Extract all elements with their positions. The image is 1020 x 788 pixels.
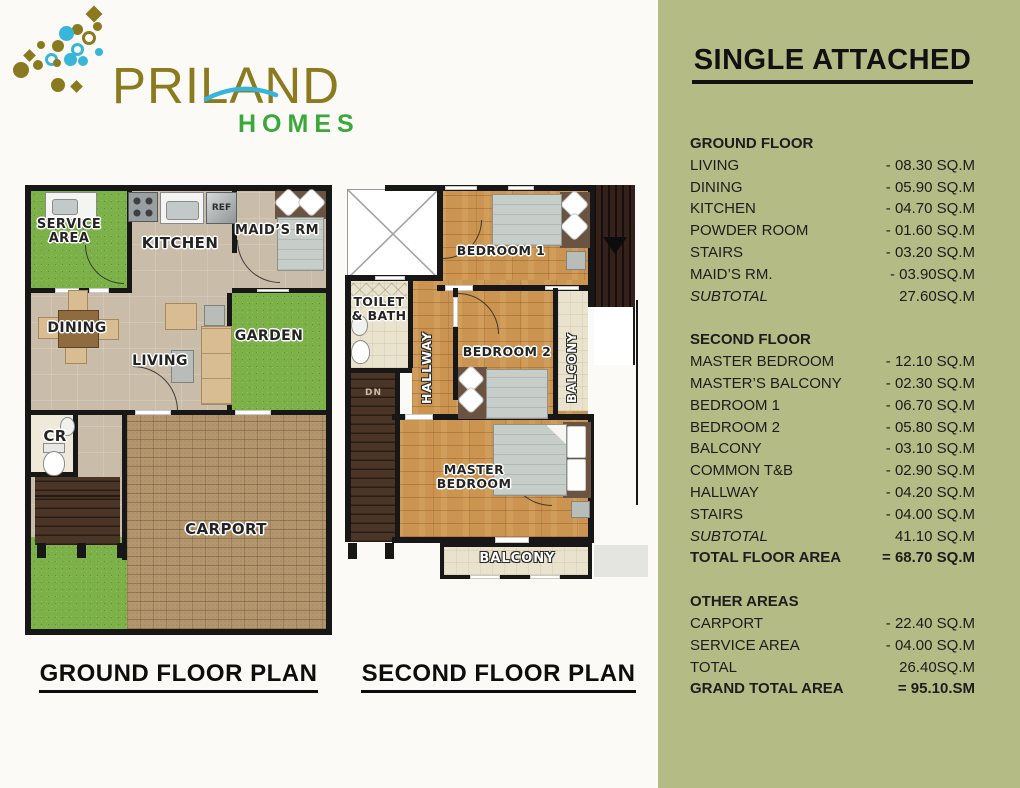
area-row-total: TOTAL FLOOR AREA= 68.70 SQ.M — [690, 547, 975, 569]
window — [508, 186, 534, 190]
logo-swoosh-icon — [203, 86, 279, 102]
logo-dot — [82, 31, 96, 45]
area-label: MAID’S RM. — [690, 264, 773, 286]
area-summary-panel: SINGLE ATTACHED GROUND FLOOR LIVING- 08.… — [658, 0, 1020, 788]
area-value: = 95.10.SM — [898, 678, 975, 700]
logo-dot — [93, 22, 102, 31]
porch-post — [37, 543, 46, 558]
other-areas-section: OTHER AREAS CARPORT- 22.40 SQ.M SERVICE … — [690, 591, 975, 700]
area-label: POWDER ROOM — [690, 220, 808, 242]
porch-post — [348, 543, 357, 559]
area-row: BALCONY- 03.10 SQ.M — [690, 438, 975, 460]
wall — [31, 410, 327, 415]
area-label: STAIRS — [690, 504, 743, 526]
logo-dot — [86, 6, 103, 23]
area-value: - 04.70 SQ.M — [886, 198, 975, 220]
section-header-text: SECOND FLOOR — [690, 329, 811, 351]
area-row: POWDER ROOM- 01.60 SQ.M — [690, 220, 975, 242]
bed1-mattress — [492, 194, 562, 246]
room-label-master-bedroom: MASTER BEDROOM — [415, 463, 533, 490]
area-row: DINING- 05.90 SQ.M — [690, 177, 975, 199]
x-cross-icon — [348, 190, 438, 278]
second-floor-section: SECOND FLOOR MASTER BEDROOM- 12.10 SQ.M … — [690, 329, 975, 569]
section-header-text: OTHER AREAS — [690, 591, 799, 613]
window — [445, 186, 477, 190]
wall — [392, 537, 594, 543]
second-floor-plan-title: SECOND FLOOR PLAN — [345, 660, 652, 688]
garden-floor — [232, 293, 326, 410]
area-label: SERVICE AREA — [690, 635, 800, 657]
area-label: SUBTOTAL — [690, 526, 768, 548]
area-label: HALLWAY — [690, 482, 759, 504]
area-label: SUBTOTAL — [690, 286, 768, 308]
logo-dot — [37, 41, 45, 49]
room-label-hallway: HALLWAY — [419, 305, 434, 430]
area-label: TOTAL FLOOR AREA — [690, 547, 841, 569]
area-value: - 05.90 SQ.M — [886, 177, 975, 199]
side-table — [204, 305, 225, 326]
area-value: - 04.00 SQ.M — [886, 504, 975, 526]
party-wall-line — [636, 300, 638, 505]
laundry-sink-icon — [45, 192, 97, 220]
area-row: TOTAL26.40SQ.M — [690, 657, 975, 679]
area-row: LIVING- 08.30 SQ.M — [690, 155, 975, 177]
window — [235, 410, 271, 415]
pillow — [567, 459, 586, 491]
area-label: CARPORT — [690, 613, 763, 635]
area-value: 27.60SQ.M — [899, 286, 975, 308]
door-opening — [445, 285, 473, 291]
room-label-toilet-bath: TOILET & BATH — [350, 295, 408, 322]
window — [89, 288, 109, 293]
door-arc — [237, 240, 280, 283]
area-row: MASTER’S BALCONY- 02.30 SQ.M — [690, 373, 975, 395]
brochure-page: PRILAND HOMES — [0, 0, 1020, 788]
area-row: KITCHEN- 04.70 SQ.M — [690, 198, 975, 220]
stove-icon — [128, 192, 158, 222]
wall — [408, 280, 413, 368]
panel-title: SINGLE ATTACHED — [690, 44, 975, 77]
area-value: 41.10 SQ.M — [895, 526, 975, 548]
area-label: LIVING — [690, 155, 739, 177]
nightstand — [566, 251, 586, 270]
down-arrow-icon — [603, 237, 627, 254]
area-value: - 02.90 SQ.M — [886, 460, 975, 482]
area-row: MASTER BEDROOM- 12.10 SQ.M — [690, 351, 975, 373]
area-value: - 22.40 SQ.M — [886, 613, 975, 635]
room-label-bedroom2: BEDROOM 2 — [453, 345, 561, 359]
toilet-icon — [351, 340, 370, 364]
area-label: STAIRS — [690, 242, 743, 264]
area-row-grand-total: GRAND TOTAL AREA= 95.10.SM — [690, 678, 975, 700]
section-header: OTHER AREAS — [690, 591, 975, 613]
roof-ledge — [594, 307, 635, 365]
ground-floor-plan-title-text: GROUND FLOOR PLAN — [39, 660, 319, 693]
porch-ridge-line — [35, 495, 120, 497]
room-label-maids-rm: MAID’S RM — [227, 224, 327, 238]
room-label-bedroom1: BEDROOM 1 — [445, 244, 557, 258]
area-value: 26.40SQ.M — [899, 657, 975, 679]
logo-dots-icon — [0, 0, 120, 110]
wall — [345, 368, 412, 373]
sink-basin — [166, 201, 199, 220]
area-row: MAID’S RM.- 03.90SQ.M — [690, 264, 975, 286]
room-label-cr: CR — [35, 428, 75, 444]
section-header-text: GROUND FLOOR — [690, 133, 813, 155]
wall — [122, 410, 127, 560]
room-label-garden: GARDEN — [225, 329, 313, 344]
area-value: - 08.30 SQ.M — [886, 155, 975, 177]
nightstand — [571, 501, 590, 518]
area-value: - 03.90SQ.M — [890, 264, 975, 286]
area-row: SERVICE AREA- 04.00 SQ.M — [690, 635, 975, 657]
wall — [385, 185, 595, 191]
area-label: GRAND TOTAL AREA — [690, 678, 844, 700]
area-value: - 03.20 SQ.M — [886, 242, 975, 264]
room-label-living: LIVING — [120, 354, 200, 369]
logo-dot — [95, 48, 103, 56]
area-value: - 06.70 SQ.M — [886, 395, 975, 417]
area-value: - 04.00 SQ.M — [886, 635, 975, 657]
area-value: - 03.10 SQ.M — [886, 438, 975, 460]
room-label-side-balcony: BALCONY — [565, 313, 579, 423]
area-label: TOTAL — [690, 657, 737, 679]
porch-post — [77, 543, 86, 558]
window — [530, 575, 560, 579]
area-label: BALCONY — [690, 438, 762, 460]
brand-tagline: HOMES — [238, 110, 360, 139]
kitchen-sink-icon — [160, 192, 204, 224]
refrigerator-icon: REF — [206, 192, 237, 224]
logo-dot — [59, 26, 74, 41]
area-row: SUBTOTAL41.10 SQ.M — [690, 526, 975, 548]
second-floor-plan: DN — [345, 185, 652, 585]
logo-dot — [70, 80, 83, 93]
area-value: - 04.20 SQ.M — [886, 482, 975, 504]
toilet-icon — [43, 451, 65, 476]
second-floor-plan-title-text: SECOND FLOOR PLAN — [361, 660, 637, 693]
area-label: KITCHEN — [690, 198, 756, 220]
open-deck-area — [347, 189, 439, 279]
area-row: CARPORT- 22.40 SQ.M — [690, 613, 975, 635]
room-label-carport: CARPORT — [175, 521, 277, 537]
area-label: BEDROOM 1 — [690, 395, 780, 417]
window — [470, 575, 500, 579]
logo-dot — [13, 62, 29, 78]
area-row: BEDROOM 1- 06.70 SQ.M — [690, 395, 975, 417]
pillow — [567, 426, 586, 458]
bed2-mattress — [486, 369, 548, 419]
room-label-kitchen: KITCHEN — [130, 235, 230, 251]
logo-dot — [33, 60, 43, 70]
area-label: DINING — [690, 177, 743, 199]
porch-post — [385, 543, 394, 559]
room-label-service-area: SERVICE AREA — [31, 218, 107, 246]
logo-dot — [78, 56, 88, 66]
area-value: = 68.70 SQ.M — [882, 547, 975, 569]
door-opening — [495, 537, 529, 543]
armchair — [165, 303, 197, 330]
logo-dot — [53, 59, 61, 67]
area-row: BEDROOM 2- 05.80 SQ.M — [690, 417, 975, 439]
panel-title-text: SINGLE ATTACHED — [692, 44, 974, 84]
sink-basin — [52, 199, 78, 215]
stairs-down-label: DN — [365, 388, 382, 398]
wall — [395, 368, 400, 542]
area-row: SUBTOTAL27.60SQ.M — [690, 286, 975, 308]
priland-homes-logo: PRILAND HOMES — [0, 0, 380, 150]
window — [545, 286, 579, 290]
area-value: - 05.80 SQ.M — [886, 417, 975, 439]
ref-label: REF — [212, 203, 231, 213]
room-label-bottom-balcony: BALCONY — [455, 551, 580, 573]
area-row: STAIRS- 04.00 SQ.M — [690, 504, 975, 526]
logo-dot — [64, 53, 77, 66]
wall — [25, 629, 332, 635]
area-value: - 01.60 SQ.M — [886, 220, 975, 242]
window — [257, 289, 289, 292]
ground-floor-plan-title: GROUND FLOOR PLAN — [25, 660, 332, 688]
area-label: MASTER’S BALCONY — [690, 373, 842, 395]
area-value: - 02.30 SQ.M — [886, 373, 975, 395]
area-value: - 12.10 SQ.M — [886, 351, 975, 373]
section-header: SECOND FLOOR — [690, 329, 975, 351]
logo-dot — [51, 78, 65, 92]
area-row: COMMON T&B- 02.90 SQ.M — [690, 460, 975, 482]
window — [375, 276, 405, 280]
area-row: HALLWAY- 04.20 SQ.M — [690, 482, 975, 504]
area-row: STAIRS- 03.20 SQ.M — [690, 242, 975, 264]
ground-floor-section: GROUND FLOOR LIVING- 08.30 SQ.M DINING- … — [690, 133, 975, 307]
room-label-dining: DINING — [36, 321, 118, 336]
area-label: BEDROOM 2 — [690, 417, 780, 439]
section-header: GROUND FLOOR — [690, 133, 975, 155]
area-label: COMMON T&B — [690, 460, 793, 482]
logo-dot — [52, 40, 64, 52]
area-label: MASTER BEDROOM — [690, 351, 834, 373]
entry-porch-roof — [35, 477, 120, 545]
neighbor-slab — [594, 545, 648, 577]
logo-dot — [23, 49, 36, 62]
ground-floor-plan: REF SERVICE AREA KITCHEN MAID’S RM DININ… — [25, 185, 332, 635]
